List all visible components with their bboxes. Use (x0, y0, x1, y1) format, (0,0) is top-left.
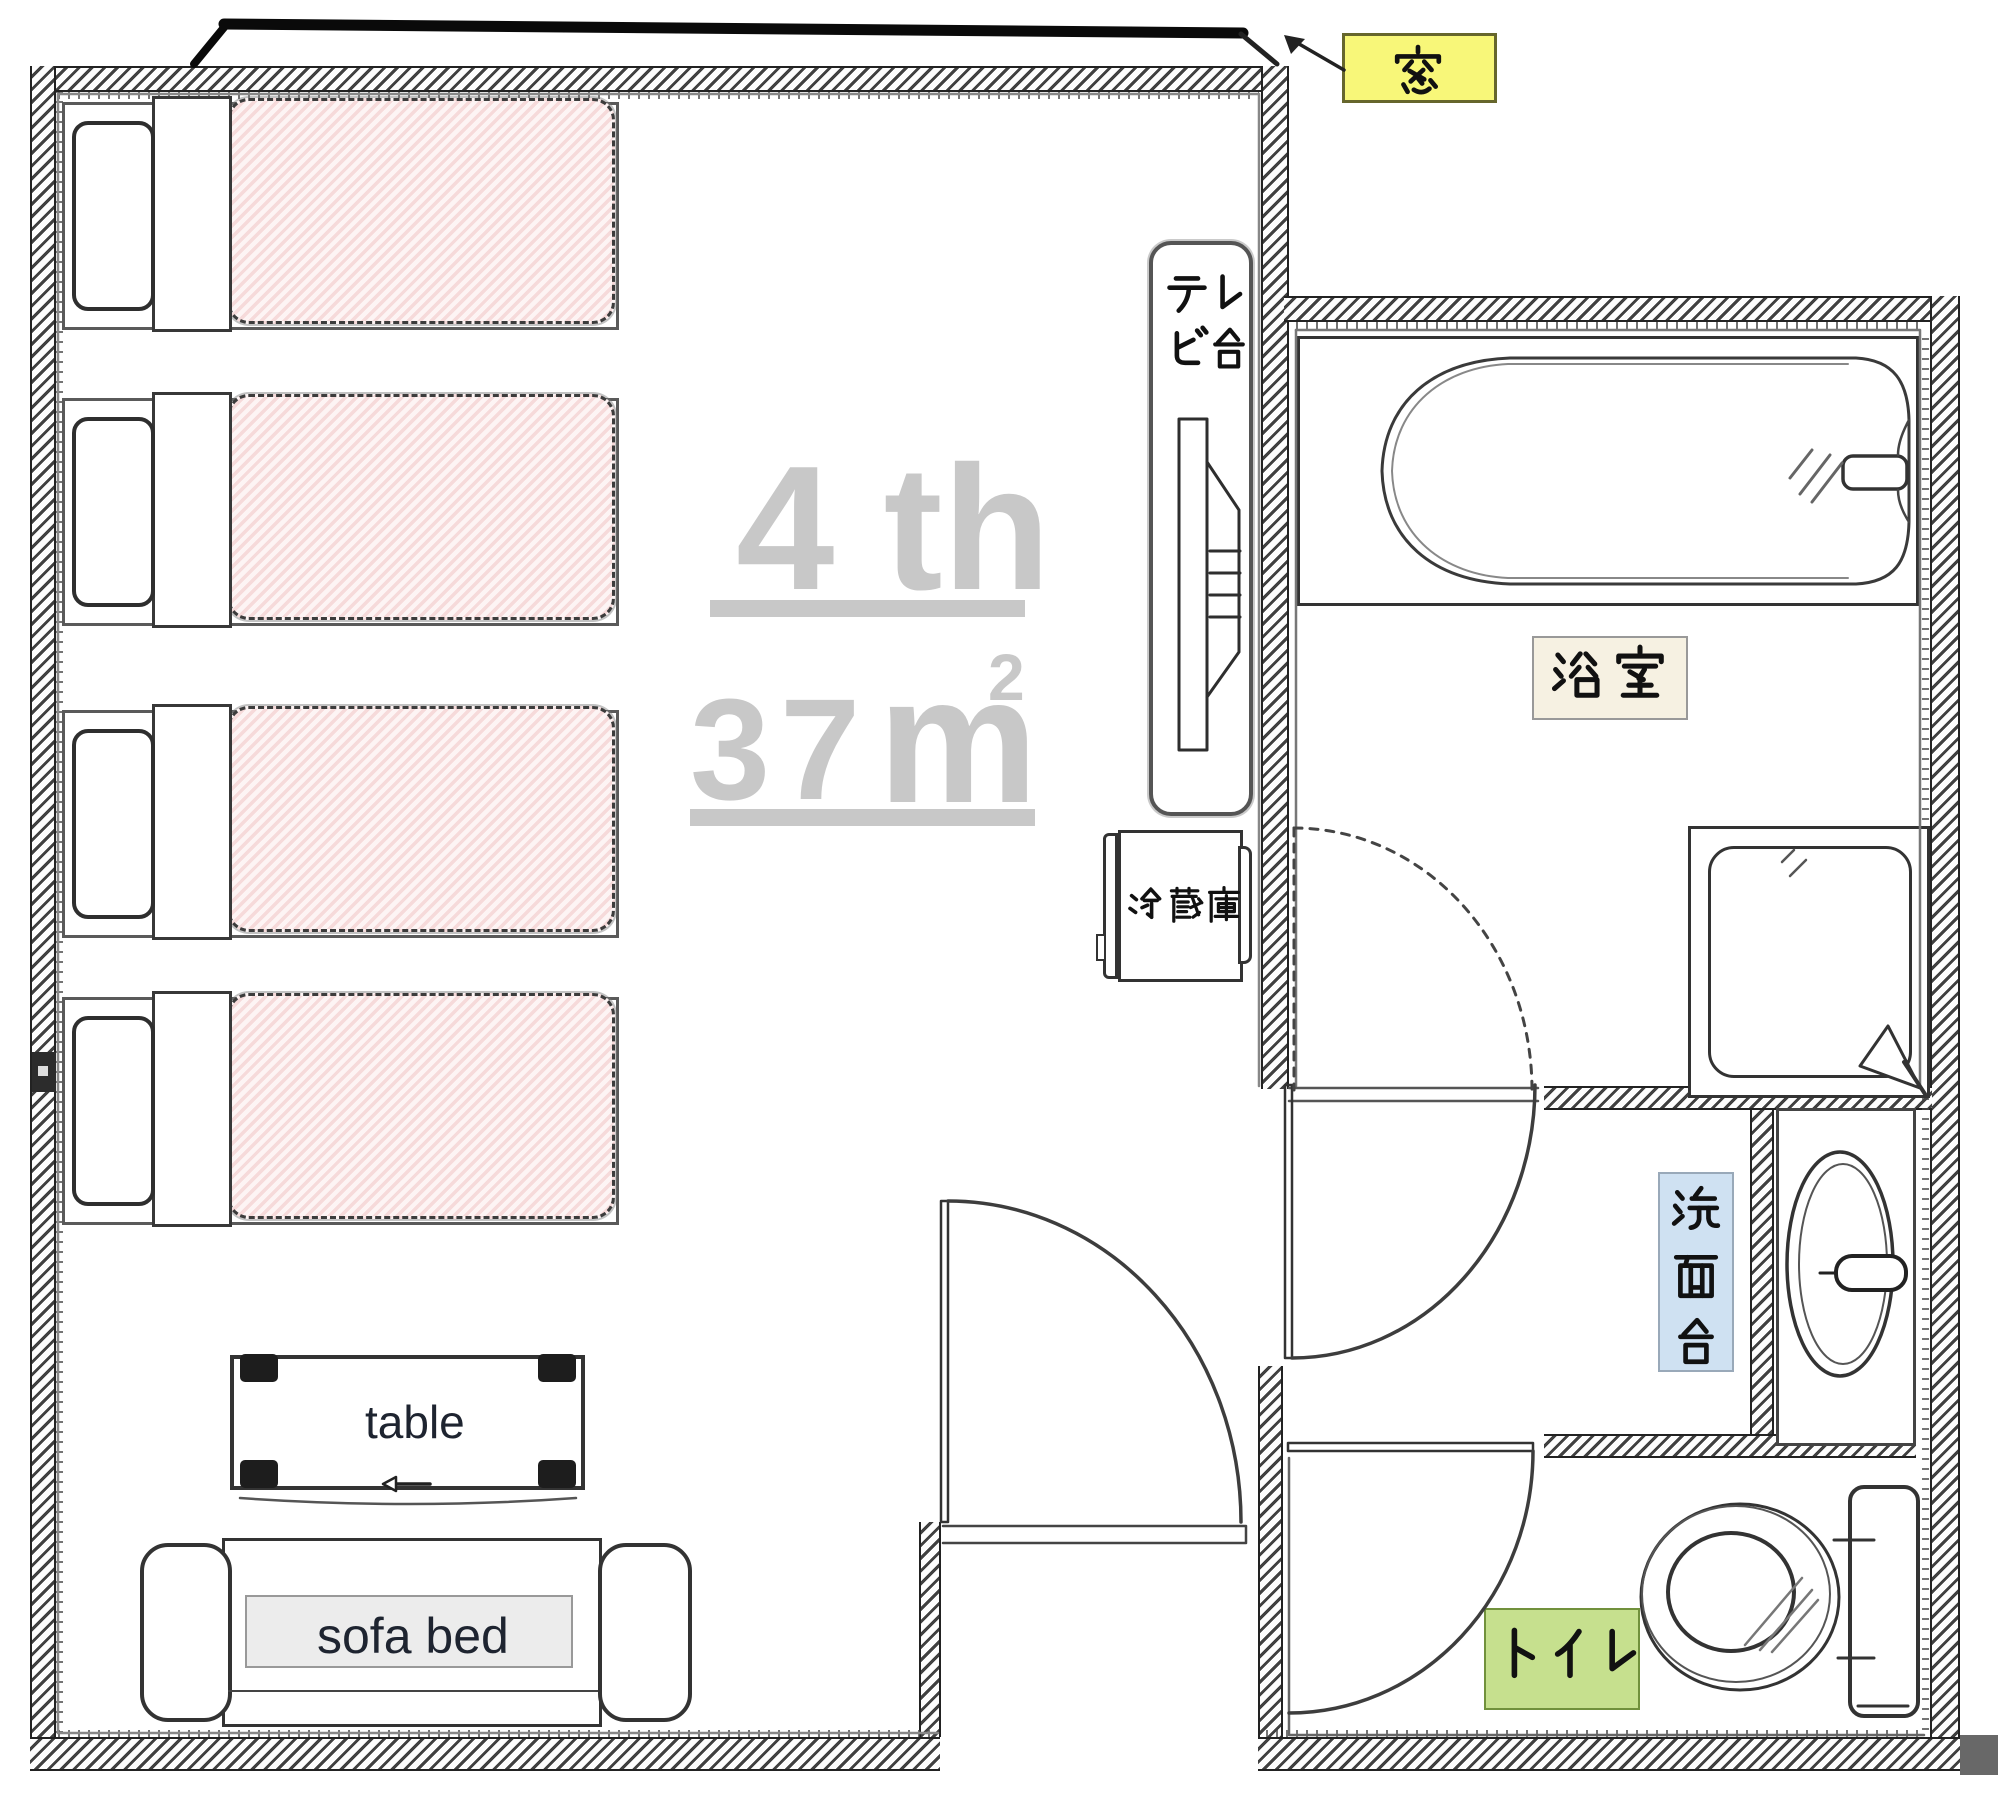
svg-text:37: 37 (690, 669, 870, 830)
svg-text:table: table (365, 1396, 465, 1448)
svg-text:4 th: 4 th (736, 429, 1051, 627)
svg-text:2: 2 (988, 640, 1025, 714)
svg-text:sofa bed: sofa bed (317, 1608, 509, 1664)
